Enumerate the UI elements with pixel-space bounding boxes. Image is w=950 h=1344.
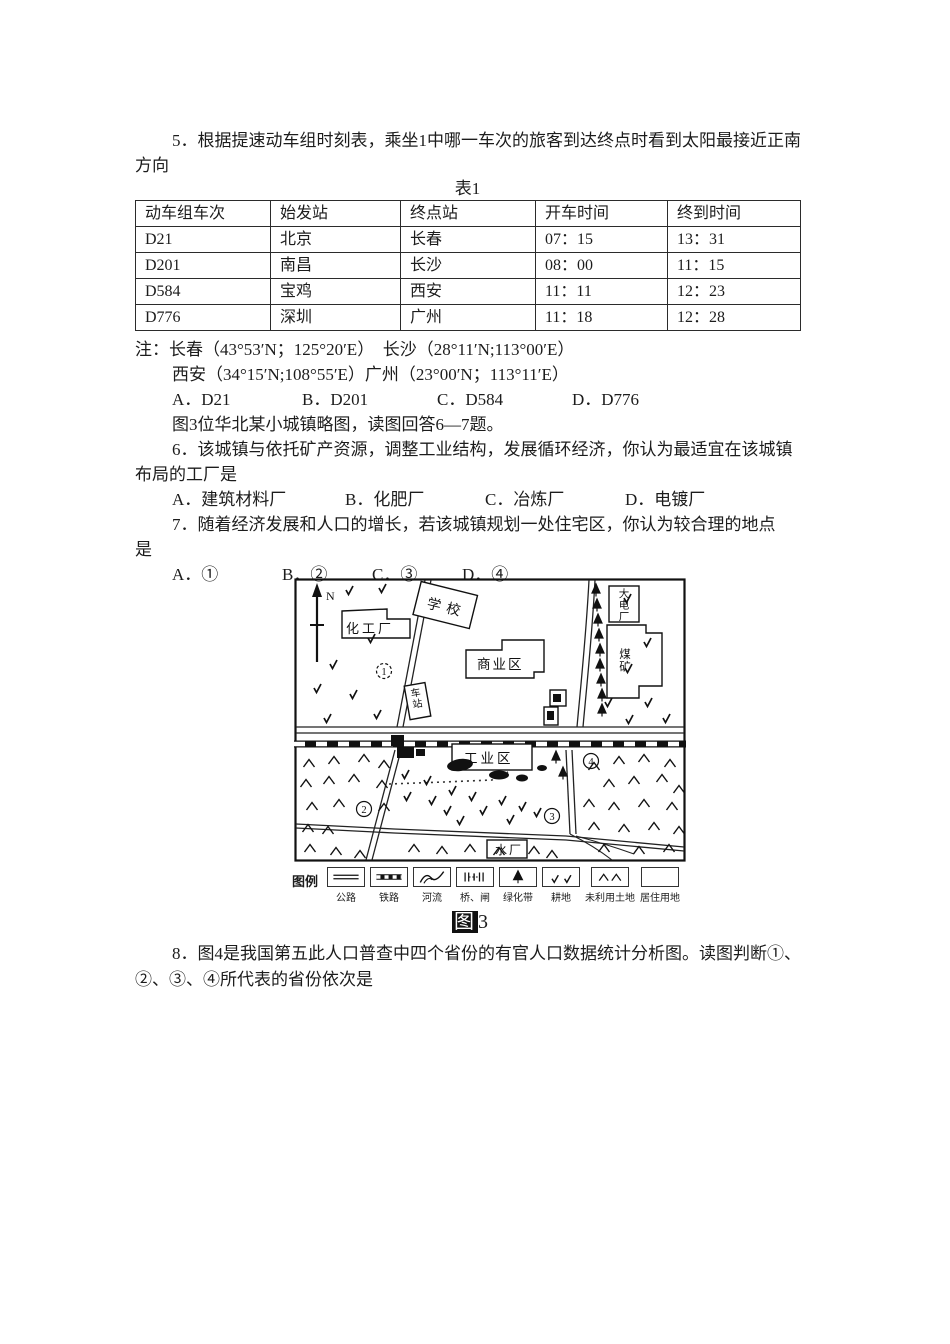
q6-option-c: C．冶炼厂 [485,487,625,512]
question-6-line-1: 6．该城镇与依托矿产资源，调整工业结构，发展循环经济，你认为最适宜在该城镇 [135,437,815,462]
table-cell: 宝鸡 [271,279,401,305]
river-symbol-icon [413,867,451,887]
table-cell: 08：00 [536,253,668,279]
table-cell: 07：15 [536,227,668,253]
table-header-cell: 始发站 [271,201,401,227]
question-8-block: 8．图4是我国第五此人口普查中四个省份的有官人口数据统计分析图。读图判断①、 ②… [135,941,835,993]
legend-item-bridge-gate: 桥、闸 [456,867,494,904]
legend-item-green-belt: 绿化带 [499,867,537,904]
table-cell: 北京 [271,227,401,253]
question-7-line-2: 是 [135,537,815,562]
q5-options-row: A．D21B．D201C．D584D．D776 [135,387,815,412]
q5-option-c: C．D584 [437,387,572,412]
chemical-plant-label: 化工厂 [346,621,394,636]
town-sketch-map: N 学校 化工厂 商业区 大电厂 煤矿 车站 工业区 水厂 [294,578,686,862]
train-timetable: 动车组车次始发站终点站开车时间终到时间D21北京长春07：1513：31D201… [135,200,801,331]
table-row: D776深圳广州11：1812：28 [136,305,801,331]
unused-land-symbol-icon [591,867,629,887]
svg-text:3: 3 [549,812,554,823]
table-cell: D776 [136,305,271,331]
residential-land-symbol-icon [641,867,679,887]
table-header-cell: 动车组车次 [136,201,271,227]
table-cell: 12：28 [668,305,801,331]
water-plant-label: 水厂 [495,843,523,857]
table-cell: 长春 [401,227,536,253]
figure-3-intro: 图3位华北某小城镇略图，读图回答6—7题。 [135,412,815,437]
table-header-cell: 终到时间 [668,201,801,227]
legend-label: 河流 [422,889,442,904]
legend-item-unused-land: 未利用土地 [585,867,635,904]
legend-item-river: 河流 [413,867,451,904]
table-cell: 11：11 [536,279,668,305]
legend-label: 耕地 [551,889,571,904]
q7-option-a: A．① [172,562,282,587]
note-line-2: 西安（34°15′N;108°55′E）广州（23°00′N；113°11′E） [135,362,815,387]
svg-text:2: 2 [361,805,366,816]
table-row: D201南昌长沙08：0011：15 [136,253,801,279]
table-header-cell: 终点站 [401,201,536,227]
q6-option-d: D．电镀厂 [625,487,705,512]
q6-options-row: A．建筑材料厂B．化肥厂C．冶炼厂D．电镀厂 [135,487,815,512]
commercial-district-label: 商业区 [477,657,524,672]
railway-symbol-icon [370,867,408,887]
table-cell: 长沙 [401,253,536,279]
figure-3-caption: 图3 [452,905,490,934]
q6-option-b: B．化肥厂 [345,487,485,512]
legend-label: 公路 [336,889,356,904]
svg-text:1: 1 [381,667,386,678]
site-circle-3: 3 [545,809,560,824]
exam-page: { "document": { "q5": { "line1": "5．根据提速… [0,0,950,1344]
table-cell: 南昌 [271,253,401,279]
coal-mine-building [607,625,662,698]
table-cell: 11：18 [536,305,668,331]
q6-option-a: A．建筑材料厂 [172,487,345,512]
table-cell: D201 [136,253,271,279]
question-text-block: 5．根据提速动车组时刻表，乘坐1中哪一车次的旅客到达终点时看到太阳最接近正南 方… [135,128,815,587]
table-header-row: 动车组车次始发站终点站开车时间终到时间 [136,201,801,227]
map-legend: 图例 公路铁路河流桥、闸绿化带耕地未利用土地居住用地 [292,867,680,904]
question-5-line-2: 方向 [135,153,815,178]
site-circle-2: 2 [357,802,372,817]
north-arrow-icon: N [310,583,335,662]
legend-label: 未利用土地 [585,889,635,904]
q5-option-b: B．D201 [302,387,437,412]
table-row: D21北京长春07：1513：31 [136,227,801,253]
table-cell: 西安 [401,279,536,305]
table-cell: D21 [136,227,271,253]
green-belt-symbol-icon [499,867,537,887]
question-5-line-1: 5．根据提速动车组时刻表，乘坐1中哪一车次的旅客到达终点时看到太阳最接近正南 [135,128,815,153]
legend-item-railway: 铁路 [370,867,408,904]
legend-label: 绿化带 [503,889,533,904]
site-circle-1: 1 [377,664,392,679]
legend-item-farmland: 耕地 [542,867,580,904]
legend-label: 居住用地 [640,889,680,904]
q5-option-d: D．D776 [572,387,639,412]
bridge-gate-symbol-icon [456,867,494,887]
table-cell: 13：31 [668,227,801,253]
power-plant-label: 大电厂 [619,587,630,623]
note-line-1: 注：长春（43°53′N；125°20′E） 长沙（28°11′N;113°00… [135,337,815,362]
table-cell: D584 [136,279,271,305]
question-7-line-1: 7．随着经济发展和人口的增长，若该城镇规划一处住宅区，你认为较合理的地点 [135,512,815,537]
legend-item-road: 公路 [327,867,365,904]
north-label: N [326,589,335,603]
caption-number: 3 [478,911,490,933]
legend-title: 图例 [292,871,318,890]
table-cell: 12：23 [668,279,801,305]
question-8-line-1: 8．图4是我国第五此人口普查中四个省份的有官人口数据统计分析图。读图判断①、 [135,941,835,967]
table-caption: 表1 [135,178,800,200]
green-belt-trees [552,584,606,780]
legend-label: 桥、闸 [460,889,490,904]
road-symbol-icon [327,867,365,887]
question-6-line-2: 布局的工厂是 [135,462,815,487]
table-header-cell: 开车时间 [536,201,668,227]
legend-item-residential-land: 居住用地 [640,867,680,904]
question-8-line-2: ②、③、④所代表的省份依次是 [135,967,835,993]
farmland-symbol-icon [542,867,580,887]
table-cell: 深圳 [271,305,401,331]
table-cell: 广州 [401,305,536,331]
table-cell: 11：15 [668,253,801,279]
q5-option-a: A．D21 [172,387,302,412]
caption-fig-char: 图 [452,911,478,933]
table-row: D584宝鸡西安11：1112：23 [136,279,801,305]
legend-label: 铁路 [379,889,399,904]
